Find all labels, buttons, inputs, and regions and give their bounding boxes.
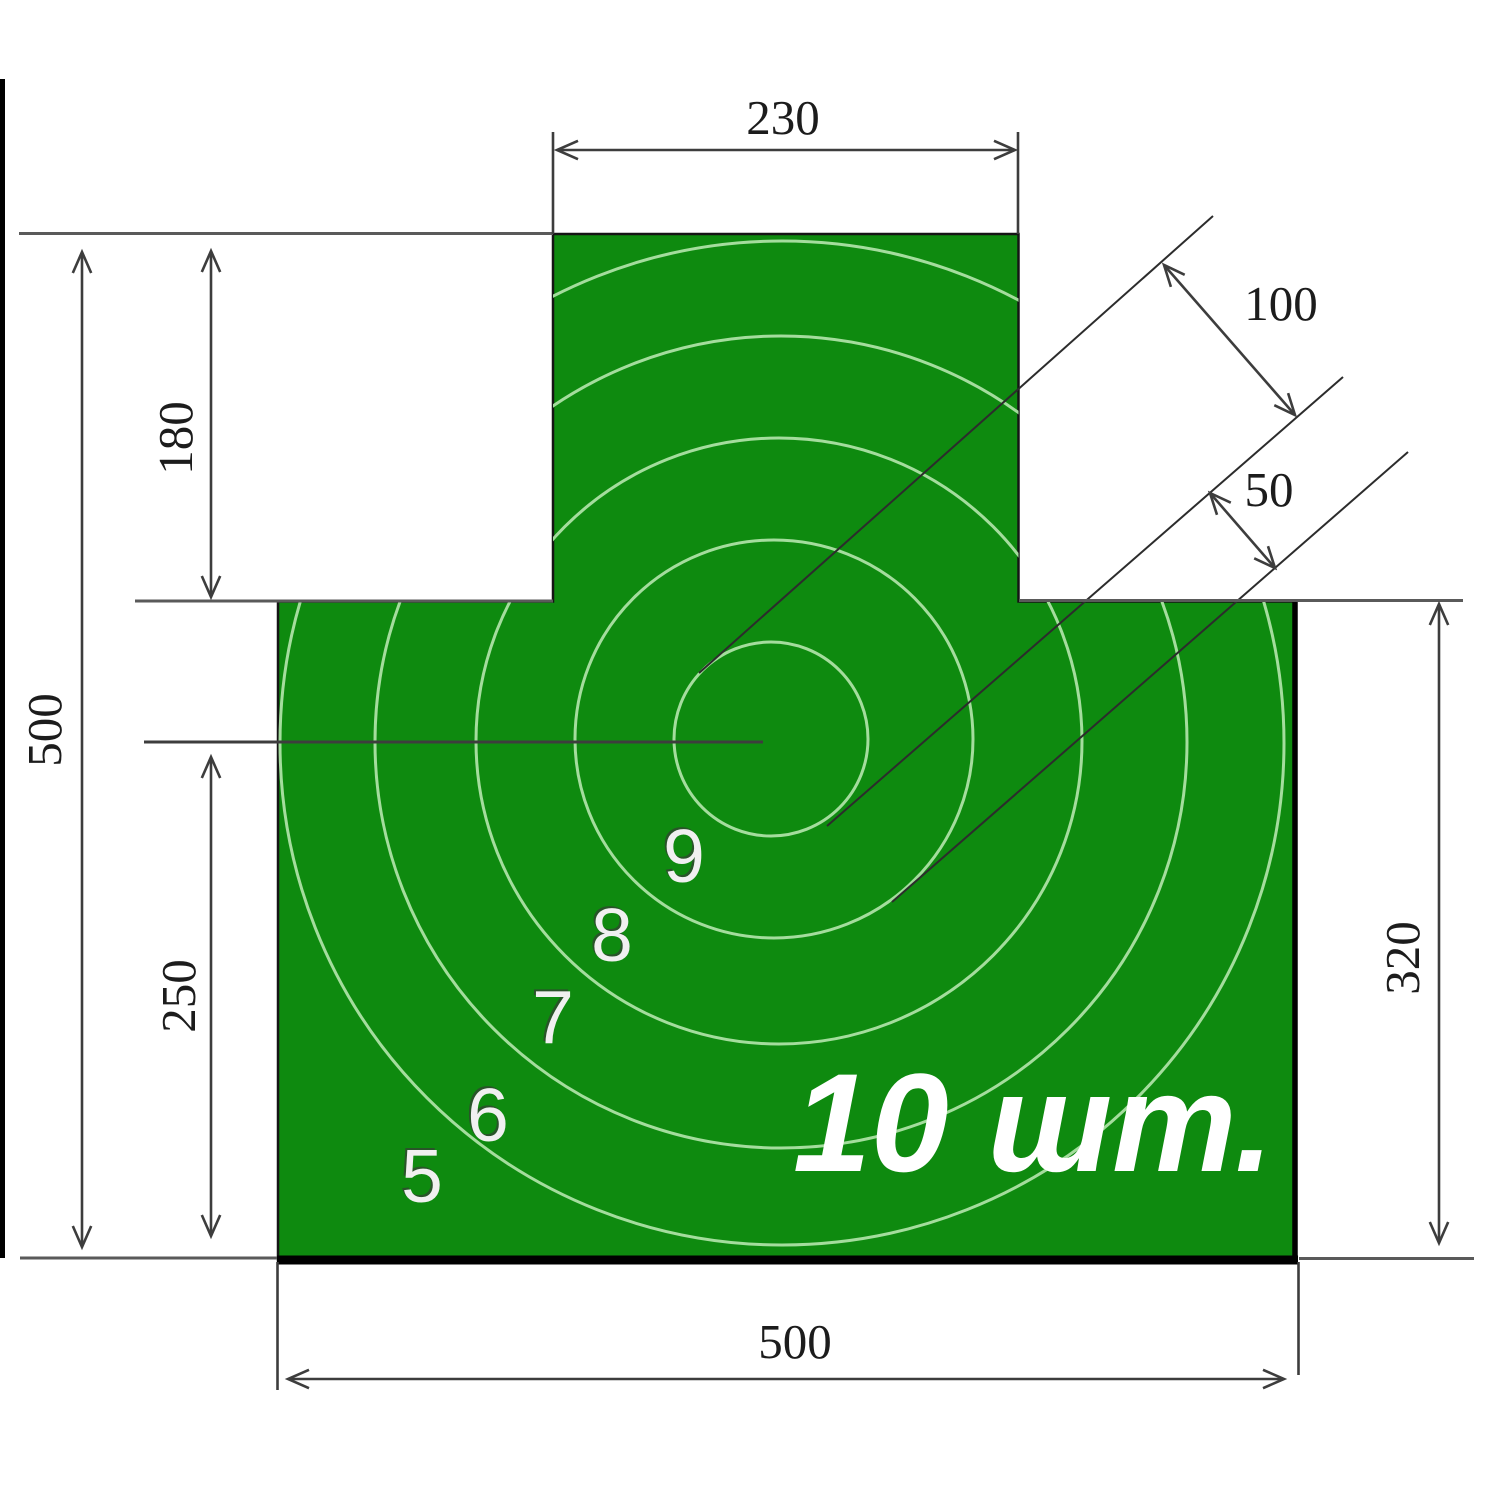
svg-text:180: 180 [148,401,203,475]
svg-text:500: 500 [17,693,72,767]
svg-text:9: 9 [663,814,705,898]
svg-text:10 шт.: 10 шт. [793,1044,1274,1201]
svg-text:250: 250 [151,959,206,1033]
svg-text:100: 100 [1244,276,1318,331]
svg-text:320: 320 [1375,921,1430,995]
svg-text:50: 50 [1245,462,1294,517]
svg-text:500: 500 [758,1314,832,1369]
svg-text:230: 230 [746,90,820,145]
svg-text:5: 5 [401,1134,443,1218]
svg-text:7: 7 [532,975,574,1059]
svg-text:6: 6 [467,1073,509,1157]
svg-text:8: 8 [591,893,633,977]
